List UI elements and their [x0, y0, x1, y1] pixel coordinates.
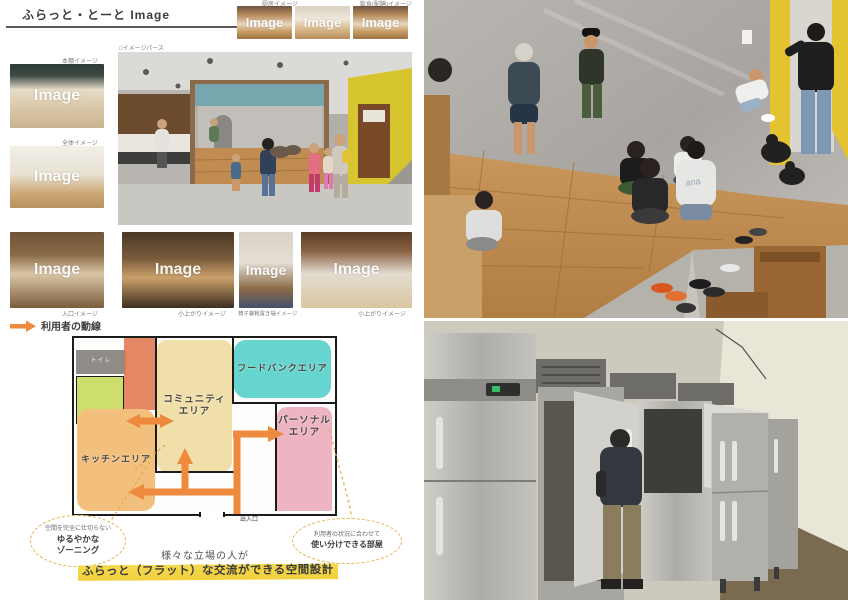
zone-foodbank: フードバンクエリア: [234, 340, 331, 398]
thumbnail-raised-floor-1: Image: [122, 232, 234, 308]
fridge-right-2: [768, 419, 798, 569]
entrance-label: 出入口: [240, 514, 258, 523]
zone-kitchen: キッチンエリア: [77, 409, 155, 511]
handle: [774, 439, 778, 473]
perspective-render: [118, 52, 412, 225]
flow-legend: 利用者の動線: [10, 318, 101, 333]
wood-beam: [190, 80, 329, 84]
toilet-label: トイレ: [90, 358, 111, 366]
wood-column: [190, 80, 195, 190]
render-scene: [118, 52, 412, 225]
thumbnail-kitchen: Image: [237, 6, 292, 39]
wall: [275, 404, 277, 511]
zone-community: コミュニティ エリア: [157, 340, 232, 472]
thumbnail-entrance: Image: [10, 232, 104, 308]
thumbnail-dining: Image: [295, 6, 350, 39]
led: [492, 386, 500, 392]
light-switch: [742, 30, 752, 44]
flow-legend-label: 利用者の動線: [41, 318, 101, 333]
wall: [155, 338, 157, 472]
page-title: ふらっと・とーと Image: [6, 6, 248, 28]
thumb-label: 入口イメージ: [62, 309, 98, 318]
photo-children-room: ana: [424, 0, 848, 318]
open-compartment: [644, 409, 702, 493]
fridge-display: [486, 383, 520, 396]
toilet-room: トイレ: [76, 350, 126, 374]
entrance-gap: [199, 512, 225, 517]
refrigerator-scene: [424, 321, 848, 600]
photo-refrigerators: [424, 321, 848, 600]
thumbnail-overall: Image: [10, 146, 104, 208]
fridge-right-1: [712, 413, 768, 581]
thumb-label: 小上がりイメージ: [178, 309, 226, 318]
children-room-scene: ana: [424, 0, 848, 318]
callout-right: 利用者の状況に合わせて 使い分けできる部屋: [292, 518, 402, 564]
slide-furatto-image: ふらっと・とーと Image 厨房イメージ 飲食(配膳)イメージ Image I…: [0, 0, 848, 600]
head-foreground: [428, 58, 452, 82]
worker-person: [596, 429, 643, 589]
wall: [232, 338, 234, 404]
summary-highlight: ふらっと（フラット）な交流ができる空間設計: [78, 561, 338, 580]
thumbnail-serving: Image: [353, 6, 408, 39]
door-window: [363, 110, 385, 122]
thumbnail-raised-floor-2: Image: [301, 232, 412, 308]
thumb-label: 椅子兼靴置き場イメージ: [238, 309, 297, 317]
thumbnail-bench: Image: [239, 232, 293, 308]
perspective-label: □イメージパース: [119, 43, 164, 52]
wall: [155, 471, 234, 473]
floor-plan: トイレ コミュニティ エリア フードバンクエリア パーソナル エリア キッチンエ…: [72, 336, 337, 516]
wall: [232, 402, 335, 404]
crate-grain: [760, 252, 820, 262]
orange-arrow-icon: [10, 320, 36, 332]
vestibule: [124, 338, 156, 410]
svg-text:ana: ana: [685, 176, 701, 188]
zone-personal: パーソナル エリア: [277, 407, 332, 511]
teal-ceiling: [194, 84, 326, 106]
thumb-label: 小上がりイメージ: [358, 309, 406, 318]
thumbnail-bookshelf: Image: [10, 64, 104, 128]
